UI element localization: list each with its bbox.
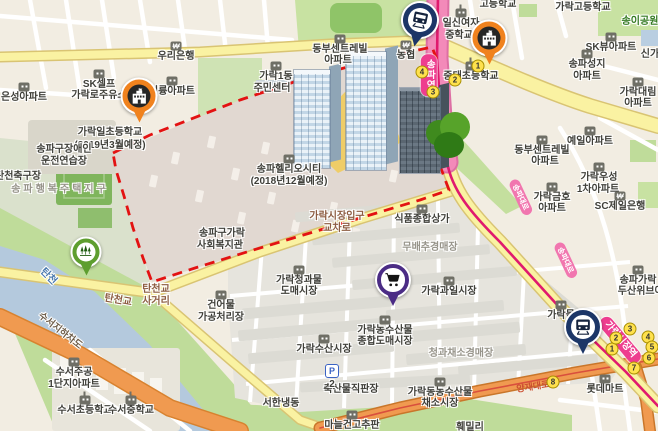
map-label: 아파트 [531, 157, 559, 167]
map-label: 식품종합상가 [394, 215, 449, 225]
map-label: 송파가락 [620, 276, 657, 286]
market-icon [294, 266, 305, 275]
map-label: 가락금호 [534, 193, 571, 203]
map-label: 가락우성 [581, 173, 618, 183]
map-label: 아파트 [624, 99, 652, 109]
map-label: 송파구가락 [199, 229, 245, 239]
map-label: 수서중학교 [108, 406, 154, 416]
map-label: 가락수산시장 [296, 345, 351, 355]
map-label: 가락시장입구 [309, 212, 364, 222]
map-canvas[interactable]: 은성아파트SK셀프가락로주유소우리은행가락일초등학교(2019년3월예정)미륭아… [0, 0, 658, 431]
bldg-icon [335, 35, 346, 44]
map-label: 청과채소경매장 [429, 349, 493, 359]
map-label: 사거리 [142, 297, 170, 307]
school-icon [127, 84, 151, 108]
station-exit-badge: 3 [624, 323, 637, 336]
map-label: 종합도매시장 [357, 337, 412, 347]
market-icon [435, 378, 446, 387]
bldg-icon [69, 358, 80, 367]
market-icon [417, 205, 428, 214]
map-label: 2 [329, 380, 335, 390]
market-icon [600, 375, 611, 384]
map-label: 주민센터 [254, 84, 291, 94]
gas-icon [94, 70, 105, 79]
map-label: 운전연습장 [41, 157, 87, 167]
map-label: 무배추경매장 [402, 243, 457, 253]
map-label: 훼밀리 [456, 423, 484, 431]
map-label: 1단지아파트 [48, 380, 100, 390]
map-label: 송파헬리오시티 [257, 165, 321, 175]
parking-icon: P [325, 364, 339, 378]
map-label: 가락일초등학교 [78, 128, 142, 138]
tower-front [346, 52, 386, 170]
map-label: 가락로주유소 [71, 91, 126, 101]
station-exit-badge: 6 [643, 352, 656, 365]
bldg-icon [547, 183, 558, 192]
map-label: 가락농수산물 [357, 326, 412, 336]
map-label: 농협 [397, 51, 415, 61]
map-label: 사회복지관 [197, 241, 243, 251]
market-icon [319, 335, 330, 344]
bldg-icon [167, 77, 178, 86]
map-label: 송파성지 [569, 60, 606, 70]
map-label: 마늘건고추판 [324, 421, 379, 431]
station-exit-badge: 8 [547, 376, 560, 389]
map-label: 교차로 [323, 224, 351, 234]
map-label: 아파트 [538, 204, 566, 214]
map-label: 롯데마트 [587, 385, 624, 395]
trees-icon [76, 242, 95, 261]
pin-disc [564, 308, 602, 346]
market-icon [216, 291, 227, 300]
map-label: 고등학교 [480, 0, 517, 10]
bldg-icon [284, 155, 295, 164]
map-label: 은성아파트 [1, 93, 47, 103]
map-label: 예일아파트 [567, 137, 613, 147]
map-label: SC제일은행 [595, 202, 646, 212]
station-exit-badge: 2 [610, 332, 623, 345]
pin-disc [375, 262, 411, 298]
school-marker-ilsin[interactable] [471, 20, 508, 57]
map-label: 송파구장애인 [36, 145, 91, 155]
map-label: 송이공원 [622, 17, 658, 27]
train-icon [405, 5, 434, 34]
market-marker-garak[interactable] [375, 262, 411, 298]
pin-disc [471, 20, 508, 57]
bldg-icon [633, 78, 644, 87]
map-label: 수서주공 [56, 368, 93, 378]
station-exit-badge: 4 [416, 66, 429, 79]
map-label: 서한냉동 [263, 399, 300, 409]
map-label: 동부센트레빌 [312, 45, 367, 55]
school-icon [80, 396, 91, 405]
map-label: 아파트 [573, 72, 601, 82]
map-label: 중학교 [445, 31, 473, 41]
bldg-icon [585, 127, 596, 136]
map-label: 가락고등학교 [555, 3, 610, 13]
map-label: 동부센트레빌 [514, 146, 569, 156]
map-label: 채소시장 [422, 399, 459, 409]
map-label: 수서초등학교 [57, 406, 112, 416]
pin-tail [133, 111, 145, 129]
pin-tail [483, 53, 495, 71]
school-icon [477, 26, 501, 50]
map-label: (2018년12월예정) [251, 177, 328, 187]
tower-side [329, 64, 341, 163]
map-label: 가공처리장 [198, 313, 244, 323]
helio-city-building-illustration [288, 48, 466, 178]
park-marker-tancheon[interactable] [71, 237, 102, 268]
bank-icon [171, 42, 182, 51]
school-marker-garakil[interactable] [121, 78, 158, 115]
station-exit-badge: 3 [427, 86, 440, 99]
bldg-icon [633, 266, 644, 275]
pin-tail [80, 264, 92, 282]
train-icon [571, 315, 595, 339]
pin-tail [387, 294, 399, 312]
station-exit-badge: 7 [628, 362, 641, 375]
map-label: 가락1동 [259, 72, 292, 82]
map-label: 가락동농수산물 [408, 388, 472, 398]
map-label: SK뷰아파트 [586, 43, 637, 53]
map-label: 탄천교 [142, 285, 170, 295]
bank-icon [615, 192, 626, 201]
station-exit-badge: 2 [449, 74, 462, 87]
bldg-icon [582, 50, 593, 59]
school-icon [456, 9, 467, 18]
school-icon [126, 396, 137, 405]
map-label: 건어물 [207, 301, 235, 311]
map-label: 가락과일시장 [421, 287, 476, 297]
tower-front [294, 70, 330, 168]
map-label: 1차아파트 [577, 185, 619, 195]
map-label: 가락청과물 [276, 276, 322, 286]
map-label: 송파행복주택지구 [11, 185, 109, 195]
market-icon [347, 411, 358, 420]
market-icon [380, 316, 391, 325]
map-label: 도매시장 [281, 287, 318, 297]
trees-illustration [434, 132, 464, 158]
map-label: 아파트 [324, 56, 352, 66]
map-label: 우리은행 [158, 52, 195, 62]
bldg-icon [19, 83, 30, 92]
subway-marker-songpa[interactable] [397, 0, 442, 43]
map-label: 신가 [641, 50, 658, 60]
map-label: 탄천축구장 [0, 172, 41, 182]
subway-marker-garak-market[interactable] [564, 308, 602, 346]
bldg-icon [271, 62, 282, 71]
map-label: 가락대림 [620, 88, 657, 98]
tower-side [385, 45, 398, 164]
map-label: SK셀프 [83, 80, 115, 90]
bldg-icon [606, 33, 617, 42]
market-icon [444, 277, 455, 286]
pin-tail [577, 342, 589, 360]
cart-icon [381, 268, 404, 291]
bldg-icon [537, 136, 548, 145]
map-label: 두산위브아파트 [618, 287, 658, 297]
bldg-icon [594, 163, 605, 172]
pin-disc [121, 78, 158, 115]
